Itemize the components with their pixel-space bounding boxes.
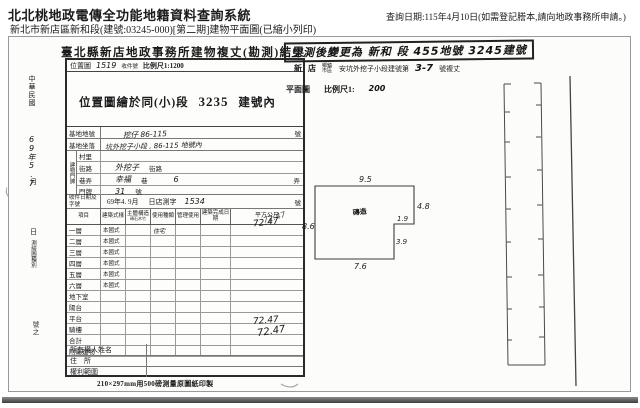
dim-bottom: 7.6 xyxy=(354,262,367,271)
field-row-lot: 基地地號 挖仔 86-115 號 xyxy=(67,127,303,139)
paper-spec-note: 210×297mm用500磅測量原圖紙印製 xyxy=(97,379,213,389)
floor-date xyxy=(201,258,231,268)
floor-area xyxy=(231,236,303,246)
margin-small-label: 測繪圖種別 xyxy=(29,240,37,268)
address-row-label: 街路 xyxy=(77,162,101,173)
location-map-scale: 比例尺1:1200 xyxy=(143,61,184,71)
address-value2-handwriting: 6 xyxy=(174,175,179,184)
plan-caption-line: 新 店 鄉鎮市區 安坑外挖子小段建號第 3-7 號複丈 xyxy=(294,63,460,74)
location-note-part1: 位置圖繪於同(小)段 xyxy=(79,97,189,109)
address-printed: 巷 xyxy=(141,175,148,185)
address-group: 建物門牌 村里 街路 外挖子 街路 xyxy=(67,151,303,195)
address-value-handwriting: 外挖子 xyxy=(115,162,139,173)
page-fold-line xyxy=(570,76,576,386)
location-map-area: 位置圖繪於同(小)段 3235 建號內 xyxy=(67,72,303,127)
floor-manage xyxy=(176,324,201,334)
col-header: 主體構造磚石木竹 xyxy=(126,209,151,224)
plan-scale-label: 比例尺1: xyxy=(324,84,355,95)
floor-construction xyxy=(126,291,151,301)
floor-manage xyxy=(176,236,201,246)
col-header: 建築完成日期 xyxy=(201,209,231,224)
floor-style: 本國式 xyxy=(101,236,126,246)
location-note-number: 3235 xyxy=(199,94,229,109)
document-subtitle: 新北市新店區新和段(建號:03245-000)[第二期]建物平面圖(已縮小列印) xyxy=(10,21,316,36)
floor-manage xyxy=(176,313,201,323)
floor-use xyxy=(151,313,176,323)
floor-use xyxy=(151,280,176,290)
floor-label: 騎樓 xyxy=(67,324,101,334)
owner-rights-label: 權利範圍 xyxy=(67,367,147,377)
floor-construction xyxy=(126,258,151,268)
address-row: 街路 外挖子 街路 xyxy=(77,162,303,174)
floor-use xyxy=(151,236,176,246)
frame-bottom-edge xyxy=(2,397,638,403)
floor-label: 三層 xyxy=(67,247,101,257)
owner-name-label: 所有權人姓名 xyxy=(67,344,147,355)
location-note-part2: 建號內 xyxy=(238,97,276,109)
floor-manage xyxy=(176,280,201,290)
floor-area xyxy=(231,280,303,290)
plan-label: 平面圖 xyxy=(286,84,310,95)
address-suffix: 弄 xyxy=(294,175,301,185)
address-row: 巷弄 幸福 巷 6 弄 xyxy=(77,174,303,186)
location-map-label: 位置圖 xyxy=(70,61,91,71)
floor-style: 本國式 xyxy=(101,280,126,290)
building-center-mark: 磚造 xyxy=(352,206,368,217)
address-value-handwriting: 幸福 xyxy=(115,174,131,185)
floor-construction xyxy=(126,225,151,235)
col-header: 項目 xyxy=(67,209,101,224)
address-row-label: 巷弄 xyxy=(77,174,101,185)
floor-label: 平台 xyxy=(67,313,101,323)
address-row: 村里 xyxy=(77,151,303,162)
field-row-receipt: 收件日期及字號 69年4. 9月 日店測字 1534 號 xyxy=(67,195,303,209)
section-label: 安坑外挖子小段建號第 xyxy=(339,64,409,74)
floor-date xyxy=(201,291,231,301)
field-row-site: 基地坐落 坑外挖子小段 , 86-115 地號內 xyxy=(67,139,303,151)
floor-construction xyxy=(126,280,151,290)
owner-address-label: 住 所 xyxy=(67,356,147,366)
floor-area xyxy=(231,247,303,257)
floor-date xyxy=(201,324,231,334)
floor-label: 四層 xyxy=(67,258,101,268)
measuring-strip xyxy=(504,83,545,365)
receipt-word: 日店測字 xyxy=(139,197,177,207)
location-note: 位置圖繪於同(小)段 3235 建號內 xyxy=(79,94,276,110)
floor-style: 本國式 xyxy=(101,247,126,257)
building-outline xyxy=(315,186,414,259)
resurvey-suffix-label: 號複丈 xyxy=(439,64,460,74)
owner-address-row: 住 所 xyxy=(67,356,303,367)
floor-use xyxy=(151,291,176,301)
floor-use xyxy=(151,302,176,312)
floor-use xyxy=(151,247,176,257)
floor-manage xyxy=(176,269,201,279)
floor-date xyxy=(201,313,231,323)
pencil-squiggle xyxy=(281,384,298,387)
field-label: 收件日期及字號 xyxy=(67,195,101,208)
floor-manage xyxy=(176,302,201,312)
margin-era-label: 中華民國 xyxy=(27,75,37,107)
margin-day-label: 日 xyxy=(30,227,38,237)
floor-style: 本國式 xyxy=(101,269,126,279)
col-header: 使用種類 xyxy=(151,209,176,224)
floor-date xyxy=(201,236,231,246)
address-rows: 村里 街路 外挖子 街路 xyxy=(77,151,303,194)
dim-notch-height: 3.9 xyxy=(396,238,408,246)
floor-area xyxy=(231,269,303,279)
floor-construction xyxy=(126,247,151,257)
query-date-text: 查詢日期:115年4月10日(如需登記謄本,請向地政事務所申請。) xyxy=(386,10,626,23)
floor-label: 陽台 xyxy=(67,302,101,312)
owner-name-row: 所有權人姓名 xyxy=(67,344,303,356)
floor-label: 五層 xyxy=(67,269,101,279)
floor-manage xyxy=(176,291,201,301)
field-label: 基地地號 xyxy=(67,127,101,138)
floor-style xyxy=(101,291,126,301)
dim-top: 9.5 xyxy=(359,175,372,184)
field-label: 基地坐落 xyxy=(67,139,101,150)
floors-table-row: 五層 本國式 xyxy=(67,269,303,280)
margin-no-label: 號之 xyxy=(29,321,39,336)
floor-use xyxy=(151,269,176,279)
floor-label: 六層 xyxy=(67,280,101,290)
floor-label: 二層 xyxy=(67,236,101,246)
address-row-label: 村里 xyxy=(77,151,101,161)
plan-scale-value-handwriting: 200 xyxy=(369,84,386,95)
floor-date xyxy=(201,302,231,312)
col-header: 管理使用 xyxy=(176,209,201,224)
floors-table-row: 四層 本國式 xyxy=(67,258,303,269)
scanned-document: 中華民國 69年5.7 月 日 測繪圖種別 號之 臺北縣新店地政事務所建物複丈(… xyxy=(8,36,631,392)
building-number-handwriting: 3-7 xyxy=(415,63,433,74)
margin-month-label: 月 xyxy=(30,177,38,187)
location-map-number-handwriting: 1519 xyxy=(96,61,116,70)
floor-label: 地下室 xyxy=(67,291,101,301)
floor-construction xyxy=(126,269,151,279)
floor-manage xyxy=(176,225,201,235)
floor-construction xyxy=(126,313,151,323)
floor-style xyxy=(101,324,126,334)
floor-manage xyxy=(176,258,201,268)
receipt-number-handwriting: 1534 xyxy=(177,197,205,206)
floor-use: 住宅 xyxy=(151,225,176,235)
floor-area xyxy=(231,291,303,301)
town-type-label: 鄉鎮市區 xyxy=(322,64,333,74)
receipt-suffix: 號 xyxy=(295,197,304,207)
floor-manage xyxy=(176,247,201,257)
floor-construction xyxy=(126,302,151,312)
floor-date xyxy=(201,280,231,290)
owner-rights-row: 權利範圍 xyxy=(67,367,303,377)
floor-area xyxy=(231,258,303,268)
survey-form: 位置圖 1519 收件號 比例尺1:1200 位置圖繪於同(小)段 3235 建… xyxy=(65,58,305,377)
floor-date xyxy=(201,269,231,279)
dim-notch-width: 1.9 xyxy=(397,215,409,223)
floor-use xyxy=(151,324,176,334)
receipt-date: 69年4. 9月 xyxy=(101,197,139,207)
address-printed: 街路 xyxy=(149,163,162,173)
floor-date xyxy=(201,225,231,235)
town-char-2: 店 xyxy=(308,63,316,74)
floors-table-row: 陽台 xyxy=(67,302,303,313)
floor-label: 一層 xyxy=(67,225,101,235)
floor-construction xyxy=(126,236,151,246)
floor-style: 本國式 xyxy=(101,258,126,268)
plan-scale-line: 平面圖 比例尺1: 200 xyxy=(286,84,385,95)
floor-style: 本國式 xyxy=(101,225,126,235)
location-map-receipt-label: 收件號 xyxy=(121,62,138,70)
floor-date xyxy=(201,247,231,257)
floors-table-row: 六層 本國式 xyxy=(67,280,303,291)
resurvey-stamp: 空測後變更為 新和 段 455地號 3245建號 xyxy=(284,39,534,62)
floors-table-row: 三層 本國式 xyxy=(67,247,303,258)
field-value-handwriting: 坑外挖子小段 , 86-115 地號內 xyxy=(101,137,303,152)
town-char-1: 新 xyxy=(294,63,302,74)
floors-table-row: 地下室 xyxy=(67,291,303,302)
address-group-label: 建物門牌 xyxy=(67,151,77,194)
floor-area xyxy=(231,302,303,312)
floor-construction xyxy=(126,324,151,334)
col-header: 建築式樣 xyxy=(101,209,126,224)
floor-style xyxy=(101,313,126,323)
floors-table-row: 二層 本國式 xyxy=(67,236,303,247)
floor-style xyxy=(101,302,126,312)
floor-use xyxy=(151,258,176,268)
dim-right: 4.8 xyxy=(417,202,430,211)
field-suffix: 號 xyxy=(295,128,304,138)
location-map-header: 位置圖 1519 收件號 比例尺1:1200 xyxy=(67,60,303,72)
